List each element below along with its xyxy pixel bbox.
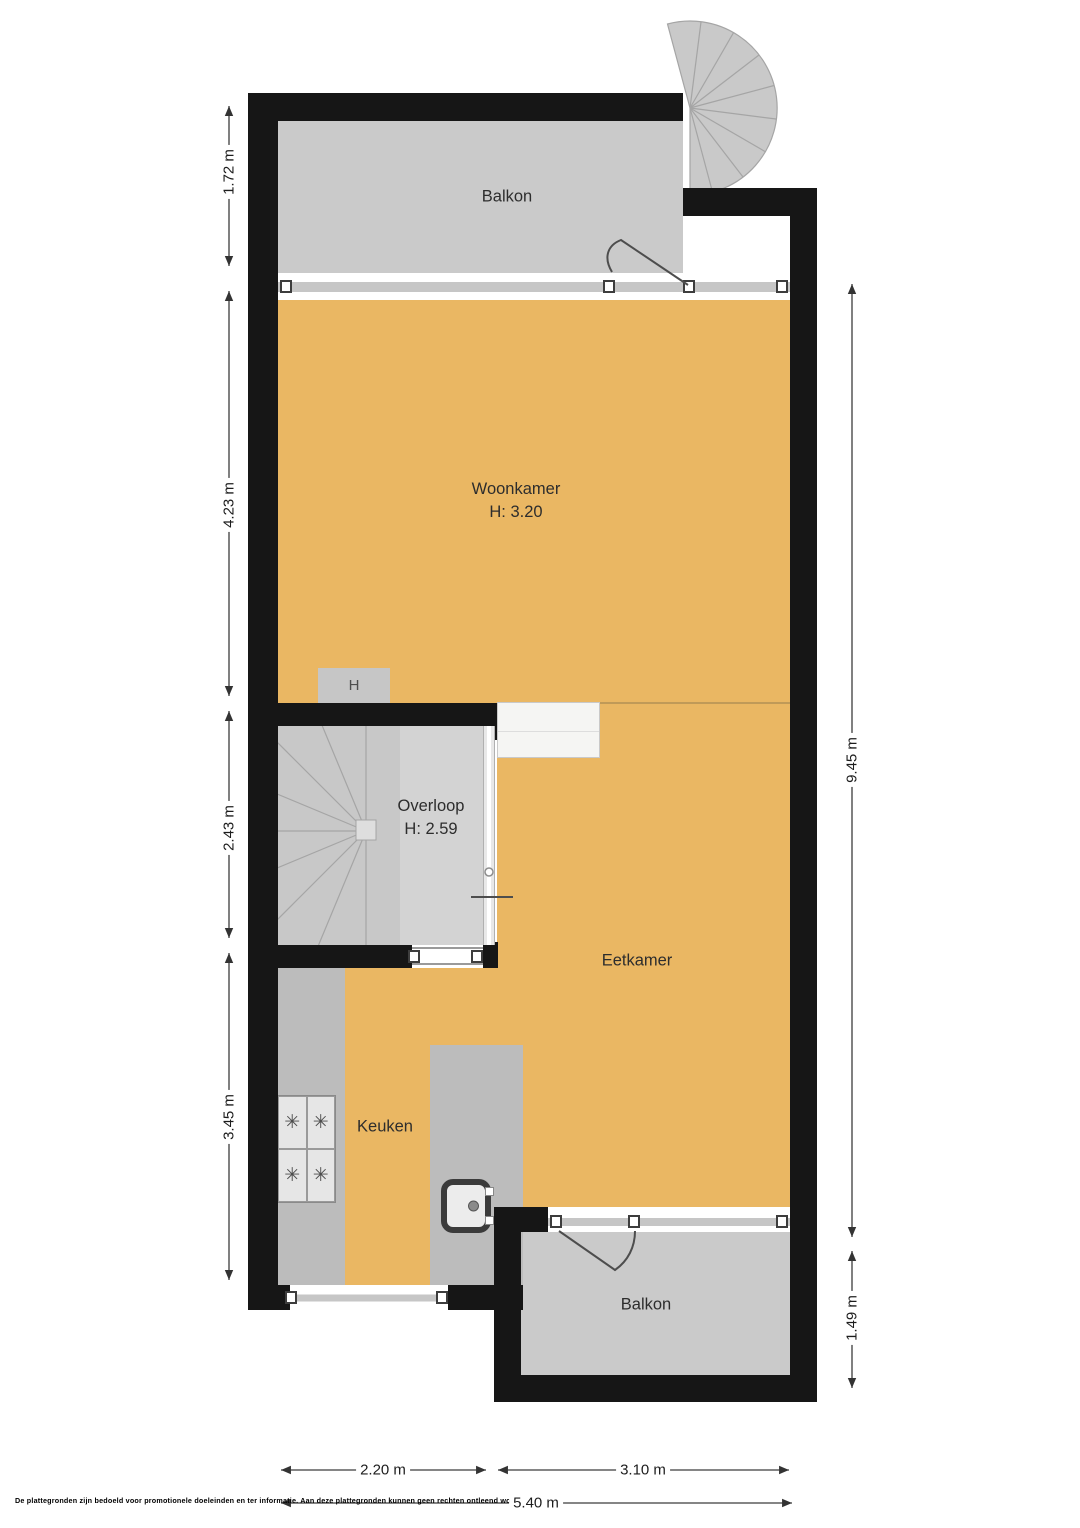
room-label-eetkamer: Eetkamer xyxy=(602,950,673,973)
window-post xyxy=(776,280,788,293)
window-post xyxy=(285,1291,297,1304)
wall-balcony-left xyxy=(494,1207,521,1402)
sink-icon xyxy=(441,1179,491,1233)
dim-bottom-3: 5.40 m xyxy=(509,1495,563,1512)
doorway-post xyxy=(471,950,483,963)
room-name: Overloop xyxy=(398,795,465,818)
window-glass-line xyxy=(290,1294,448,1301)
floorplan-page: ✳ ✳ ✳ ✳ H xyxy=(0,0,1080,1528)
window-balcony-bottom xyxy=(548,1211,790,1232)
room-label-keuken: Keuken xyxy=(357,1116,413,1139)
window-post xyxy=(628,1215,640,1228)
dim-left-4: 3.45 m xyxy=(221,1090,238,1144)
stair-area-floor xyxy=(278,726,400,945)
wall-kitchen-bottom-left xyxy=(248,1285,290,1310)
disclaimer-text: De plattegronden zijn bedoeld voor promo… xyxy=(15,1496,529,1505)
wall-balcony-bottom xyxy=(494,1375,817,1402)
closet-shelf-line xyxy=(498,731,599,732)
window-balcony-top xyxy=(278,273,790,300)
room-label-woonkamer: Woonkamer H: 3.20 xyxy=(472,478,561,524)
window-post xyxy=(550,1215,562,1228)
sink-fitting xyxy=(485,1216,494,1225)
burner-icon: ✳ xyxy=(307,1096,336,1149)
room-height: H: 3.20 xyxy=(472,501,561,524)
wall-overloop-bottom xyxy=(248,945,412,968)
window-post xyxy=(436,1291,448,1304)
heater-unit-label: H xyxy=(349,677,360,694)
faucet-icon xyxy=(468,1201,479,1212)
wall-balcony-top-stub xyxy=(521,1207,548,1232)
window-glass-line xyxy=(548,1218,790,1226)
room-label-balkon-top: Balkon xyxy=(482,186,532,209)
window-glass-line xyxy=(278,282,790,292)
dim-left-2: 4.23 m xyxy=(221,478,238,532)
doorway-post xyxy=(408,950,420,963)
heater-unit: H xyxy=(318,668,390,703)
dim-right-1: 9.45 m xyxy=(844,733,861,787)
burner-icon: ✳ xyxy=(278,1149,307,1202)
window-post xyxy=(776,1215,788,1228)
balkon-top-floor xyxy=(278,121,683,273)
wall-left xyxy=(248,93,278,1310)
dim-left-1: 1.72 m xyxy=(221,145,238,199)
stove-icon: ✳ ✳ ✳ ✳ xyxy=(277,1095,336,1203)
wall-overloop-corner xyxy=(483,942,498,968)
dim-right-2: 1.49 m xyxy=(844,1291,861,1345)
spiral-staircase-icon xyxy=(668,21,778,195)
dim-bottom-1: 2.20 m xyxy=(356,1462,410,1479)
room-label-balkon-bottom: Balkon xyxy=(621,1294,671,1317)
room-height: H: 2.59 xyxy=(398,818,465,841)
sink-fitting xyxy=(485,1187,494,1196)
burner-icon: ✳ xyxy=(278,1096,307,1149)
dim-bottom-2: 3.10 m xyxy=(616,1462,670,1479)
wall-overloop-top xyxy=(248,703,498,726)
window-post xyxy=(683,280,695,293)
window-post xyxy=(280,280,292,293)
room-name: Woonkamer xyxy=(472,478,561,501)
glass-stripe xyxy=(487,726,491,945)
wall-right xyxy=(790,188,817,1402)
burner-icon: ✳ xyxy=(307,1149,336,1202)
window-post xyxy=(603,280,615,293)
wall-top xyxy=(248,93,683,121)
overloop-glass-partition xyxy=(483,726,495,945)
window-kitchen xyxy=(290,1288,448,1307)
closet xyxy=(497,702,600,758)
room-label-overloop: Overloop H: 2.59 xyxy=(398,795,465,841)
dim-left-3: 2.43 m xyxy=(221,801,238,855)
